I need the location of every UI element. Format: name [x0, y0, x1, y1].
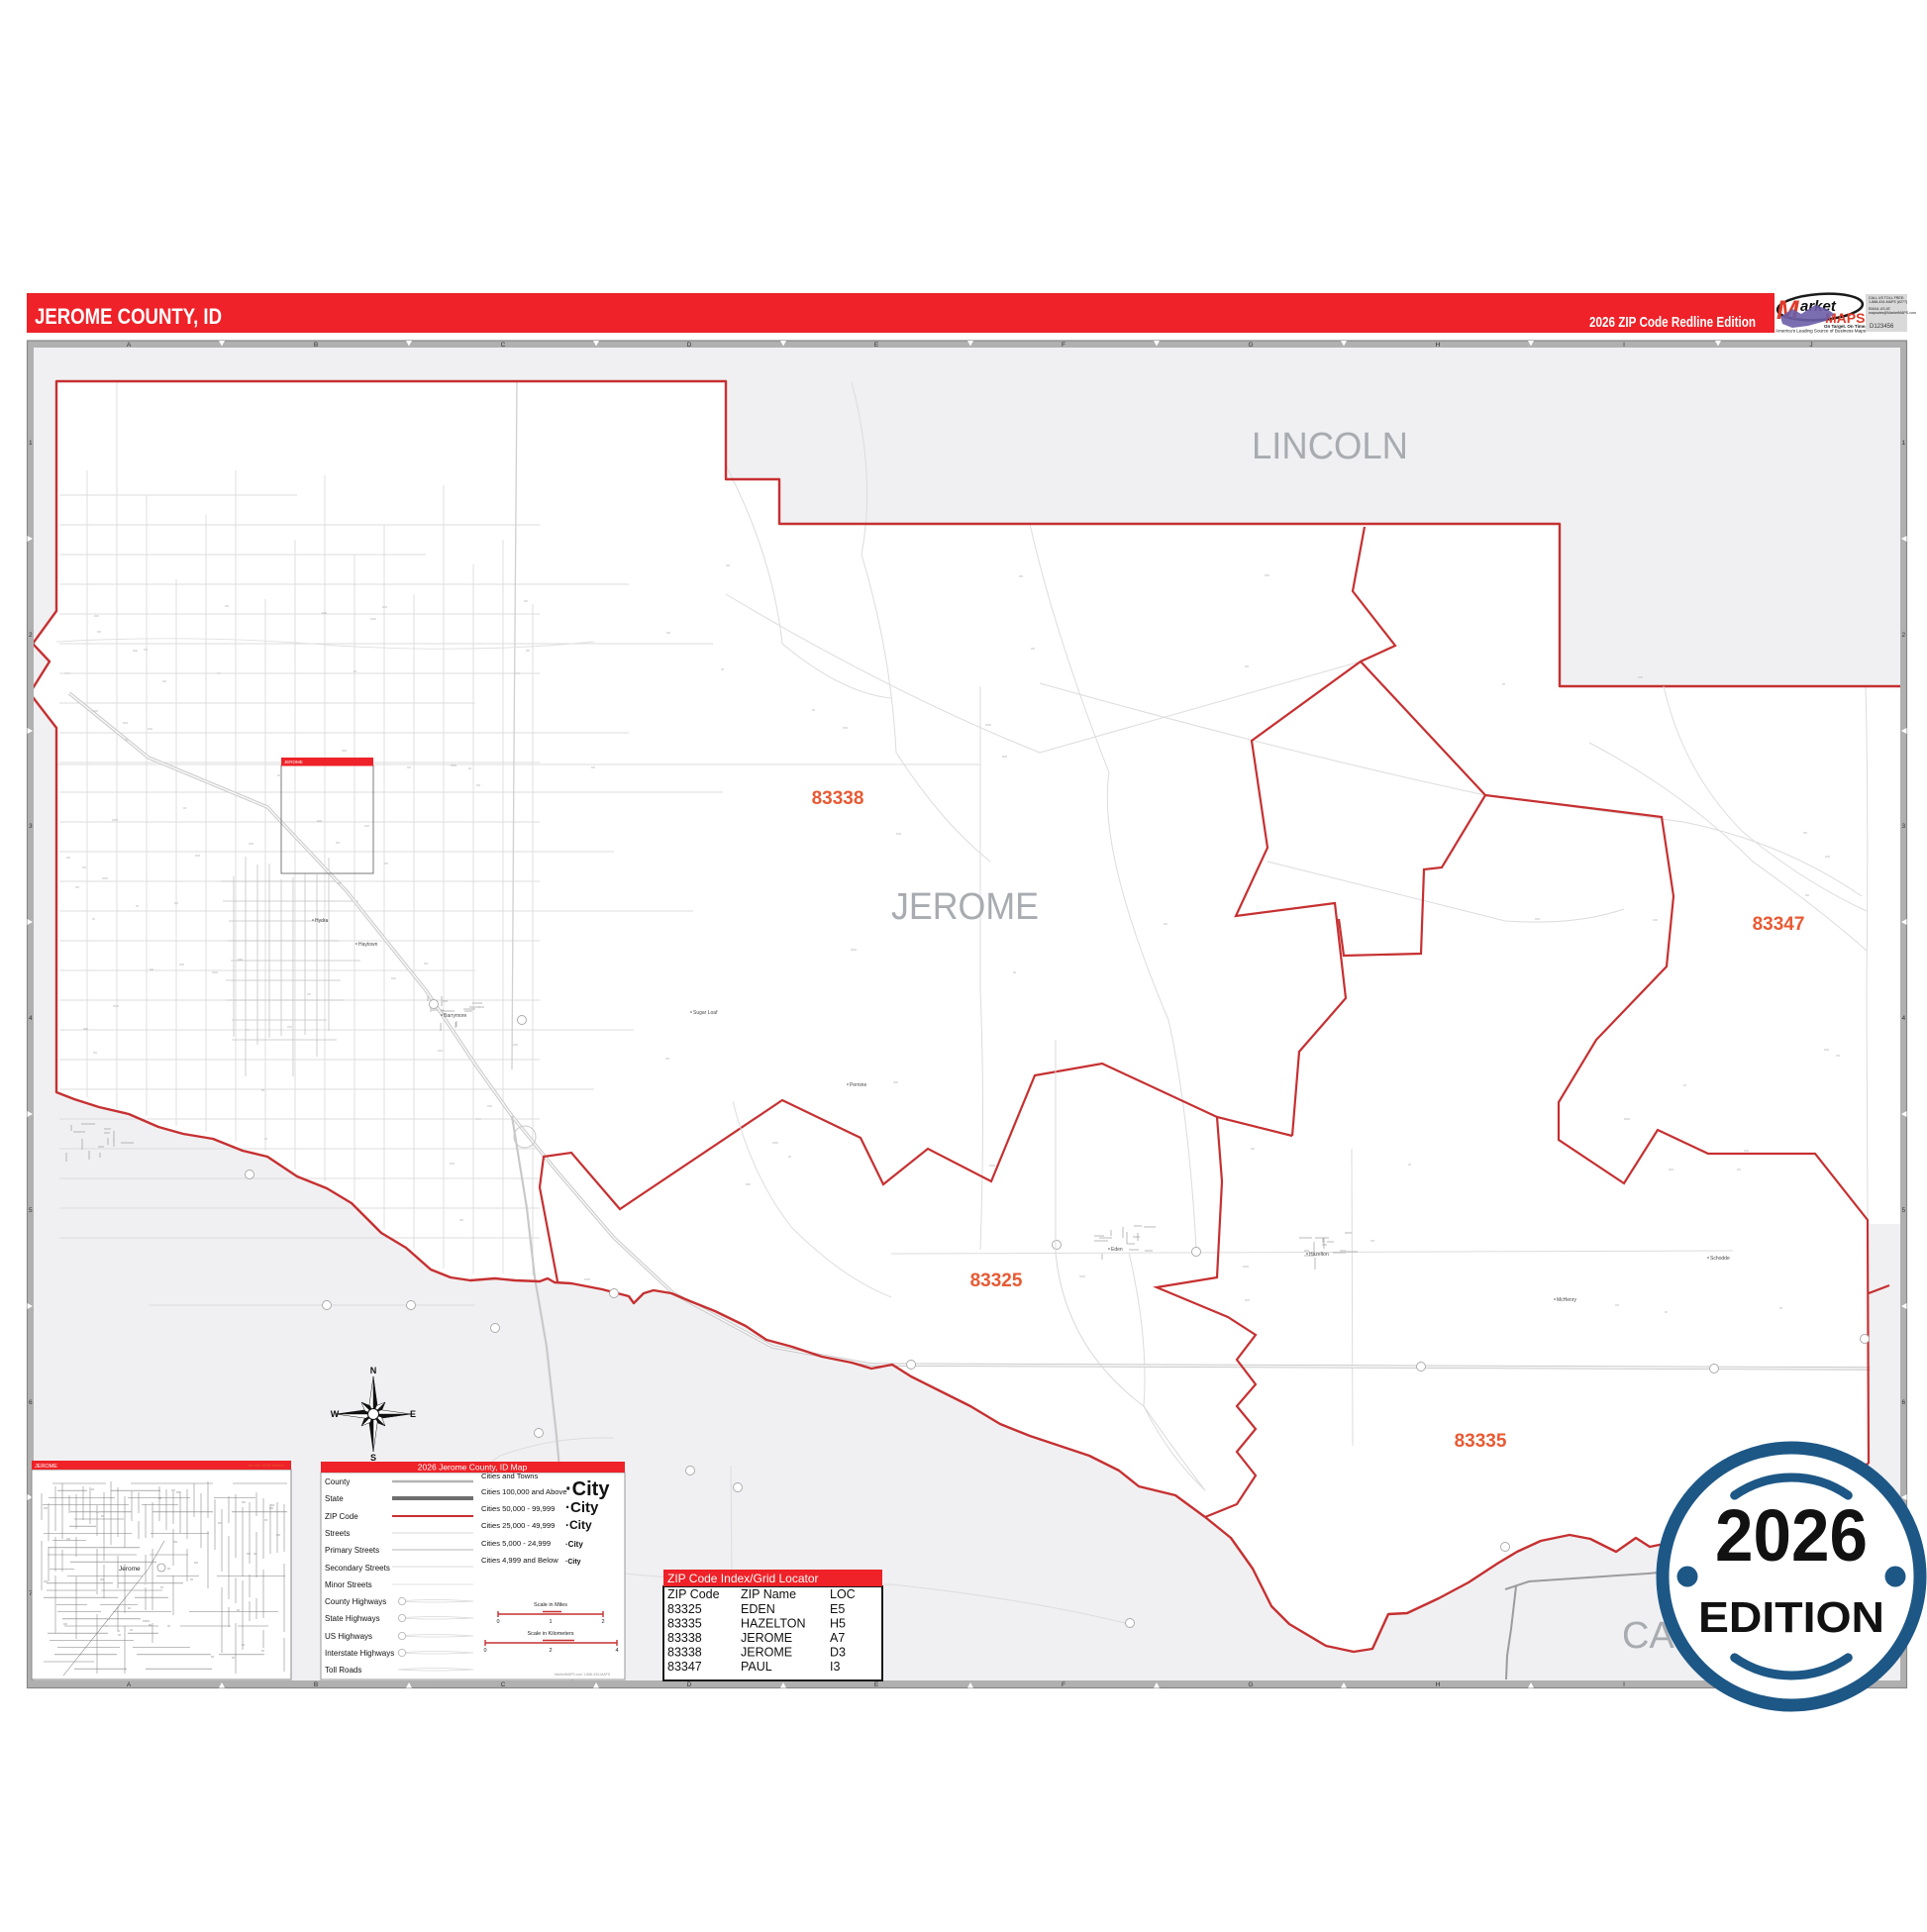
- svg-text:Cities 50,000 - 99,999: Cities 50,000 - 99,999: [481, 1504, 555, 1513]
- svg-text:W: W: [331, 1409, 340, 1419]
- svg-text:County Highways: County Highways: [325, 1597, 386, 1606]
- svg-text:Primary Streets: Primary Streets: [325, 1546, 379, 1555]
- svg-text:1: 1: [29, 440, 33, 447]
- svg-text:Pernine: Pernine: [850, 1082, 866, 1088]
- svg-text:83335: 83335: [1455, 1431, 1507, 1452]
- svg-text:H5: H5: [830, 1617, 846, 1631]
- svg-text:I3: I3: [830, 1660, 840, 1674]
- svg-text:C: C: [501, 342, 506, 349]
- svg-text:·City: ·City: [565, 1499, 599, 1516]
- svg-text:JEROME: JEROME: [891, 886, 1039, 928]
- svg-text:ZIP Name: ZIP Name: [741, 1587, 796, 1601]
- svg-text:B: B: [314, 342, 318, 349]
- svg-text:MarketMAPS.com 1-888-434-MAPS: MarketMAPS.com 1-888-434-MAPS: [555, 1673, 611, 1677]
- svg-text:83335: 83335: [667, 1617, 702, 1631]
- svg-text:N: N: [370, 1366, 377, 1375]
- svg-text:State Highways: State Highways: [325, 1614, 380, 1623]
- svg-text:B: B: [314, 1681, 318, 1688]
- svg-text:EDITION: EDITION: [1698, 1593, 1884, 1642]
- svg-text:2026: 2026: [1715, 1494, 1868, 1576]
- svg-text:83338: 83338: [812, 788, 864, 809]
- svg-text:F: F: [1062, 342, 1065, 349]
- svg-text:A: A: [127, 342, 132, 349]
- svg-text:J: J: [1809, 342, 1812, 349]
- svg-text:Toll Roads: Toll Roads: [325, 1666, 361, 1675]
- svg-text:Sugar Loaf: Sugar Loaf: [693, 1010, 718, 1016]
- svg-text:6: 6: [1902, 1399, 1906, 1406]
- svg-text:A7: A7: [830, 1631, 845, 1645]
- svg-text:Secondary Streets: Secondary Streets: [325, 1564, 390, 1573]
- svg-text:Interstate Highways: Interstate Highways: [325, 1649, 394, 1658]
- svg-text:JEROME COUNTY, ID: JEROME COUNTY, ID: [35, 304, 222, 329]
- svg-text:I: I: [1623, 1681, 1625, 1688]
- svg-text:6: 6: [29, 1399, 33, 1406]
- svg-text:E: E: [410, 1409, 416, 1419]
- svg-text:0: 0: [496, 1619, 499, 1625]
- svg-text:E: E: [874, 1681, 879, 1688]
- svg-text:1: 1: [549, 1619, 552, 1625]
- svg-text:E5: E5: [830, 1602, 845, 1616]
- svg-text:Hydra: Hydra: [315, 918, 329, 924]
- svg-text:1-888-434-MAPS (6277): 1-888-434-MAPS (6277): [1869, 300, 1907, 304]
- svg-text:83347: 83347: [1753, 914, 1805, 935]
- svg-text:LOC: LOC: [830, 1587, 856, 1601]
- svg-text:LINCOLN: LINCOLN: [1252, 426, 1408, 467]
- svg-text:State: State: [325, 1494, 344, 1503]
- svg-text:·City: ·City: [565, 1559, 581, 1566]
- svg-text:HAZELTON: HAZELTON: [741, 1617, 806, 1631]
- svg-text:Scale in Miles: Scale in Miles: [534, 1602, 567, 1608]
- svg-text:2026 Jerome County, ID Map: 2026 Jerome County, ID Map: [418, 1463, 528, 1473]
- svg-text:H: H: [1436, 1681, 1441, 1688]
- svg-text:PAUL: PAUL: [741, 1660, 772, 1674]
- svg-text:Cities 100,000 and Above: Cities 100,000 and Above: [481, 1487, 567, 1496]
- svg-text:2: 2: [1902, 632, 1906, 639]
- svg-text:McHenry: McHenry: [1557, 1297, 1577, 1303]
- svg-text:America's Leading Source of Bu: America's Leading Source of Business Map…: [1775, 329, 1867, 334]
- svg-text:I: I: [1623, 342, 1625, 349]
- svg-text:·City: ·City: [565, 1478, 610, 1500]
- svg-text:D: D: [687, 342, 692, 349]
- svg-text:4: 4: [1902, 1015, 1906, 1022]
- svg-text:Scale in Kilometers: Scale in Kilometers: [527, 1631, 573, 1637]
- svg-text:Jerome: Jerome: [119, 1566, 141, 1573]
- svg-text:2: 2: [601, 1619, 604, 1625]
- svg-text:·City: ·City: [565, 1540, 583, 1549]
- svg-text:Cities 4,999 and Below: Cities 4,999 and Below: [481, 1556, 558, 1565]
- svg-text:4: 4: [29, 1015, 33, 1022]
- svg-text:Minor Streets: Minor Streets: [325, 1580, 372, 1589]
- svg-text:4: 4: [615, 1648, 618, 1654]
- svg-text:D: D: [687, 1681, 692, 1688]
- svg-text:1: 1: [1902, 440, 1906, 447]
- svg-text:2: 2: [549, 1648, 552, 1654]
- svg-text:County: County: [325, 1477, 350, 1486]
- svg-text:Cities 5,000 - 24,999: Cities 5,000 - 24,999: [481, 1539, 551, 1548]
- svg-text:D123456: D123456: [1870, 324, 1894, 330]
- svg-text:Hazelton: Hazelton: [1309, 1252, 1329, 1258]
- svg-text:5: 5: [29, 1207, 33, 1214]
- svg-text:ZIP Code: ZIP Code: [667, 1587, 720, 1601]
- svg-text:3: 3: [1902, 823, 1906, 830]
- svg-text:2026 ZIP Code Redline Edition: 2026 ZIP Code Redline Edition: [1589, 314, 1756, 331]
- svg-text:JEROME: JEROME: [741, 1631, 792, 1645]
- svg-text:Eden: Eden: [1111, 1247, 1123, 1253]
- svg-text:83338: 83338: [667, 1631, 702, 1645]
- svg-text:A: A: [127, 1681, 132, 1688]
- svg-text:ZIP Code: ZIP Code: [325, 1512, 358, 1521]
- svg-text:H: H: [1436, 342, 1441, 349]
- svg-text:Jerome 2026 Edition: Jerome 2026 Edition: [248, 1463, 284, 1468]
- svg-text:S: S: [370, 1453, 376, 1463]
- svg-text:83338: 83338: [667, 1646, 702, 1660]
- svg-text:·City: ·City: [565, 1518, 592, 1532]
- svg-text:Streets: Streets: [325, 1529, 350, 1538]
- svg-text:JEROME: JEROME: [35, 1464, 57, 1470]
- svg-text:0: 0: [483, 1648, 486, 1654]
- svg-text:mapsales@MarketMAPS.com: mapsales@MarketMAPS.com: [1869, 311, 1916, 315]
- svg-text:US Highways: US Highways: [325, 1632, 372, 1641]
- svg-text:Haytown: Haytown: [358, 942, 378, 948]
- svg-text:C: C: [501, 1681, 506, 1688]
- svg-text:ZIP Code Index/Grid Locator: ZIP Code Index/Grid Locator: [667, 1572, 819, 1585]
- svg-text:Cities 25,000 - 49,999: Cities 25,000 - 49,999: [481, 1521, 555, 1530]
- svg-text:3: 3: [29, 823, 33, 830]
- svg-text:83325: 83325: [667, 1602, 702, 1616]
- svg-text:EDEN: EDEN: [741, 1602, 775, 1616]
- svg-text:JEROME: JEROME: [741, 1646, 792, 1660]
- svg-text:Schodde: Schodde: [1710, 1256, 1730, 1262]
- svg-text:2: 2: [29, 632, 33, 639]
- svg-text:83347: 83347: [667, 1660, 702, 1674]
- svg-text:83325: 83325: [970, 1271, 1023, 1291]
- svg-text:E: E: [874, 342, 879, 349]
- svg-text:G: G: [1248, 1681, 1253, 1688]
- svg-text:F: F: [1062, 1681, 1065, 1688]
- svg-text:Barrymore: Barrymore: [444, 1013, 467, 1019]
- svg-text:D3: D3: [830, 1646, 846, 1660]
- svg-text:JEROME: JEROME: [284, 760, 303, 764]
- svg-text:5: 5: [1902, 1207, 1906, 1214]
- svg-text:G: G: [1248, 342, 1253, 349]
- svg-text:Cities and Towns: Cities and Towns: [481, 1472, 538, 1480]
